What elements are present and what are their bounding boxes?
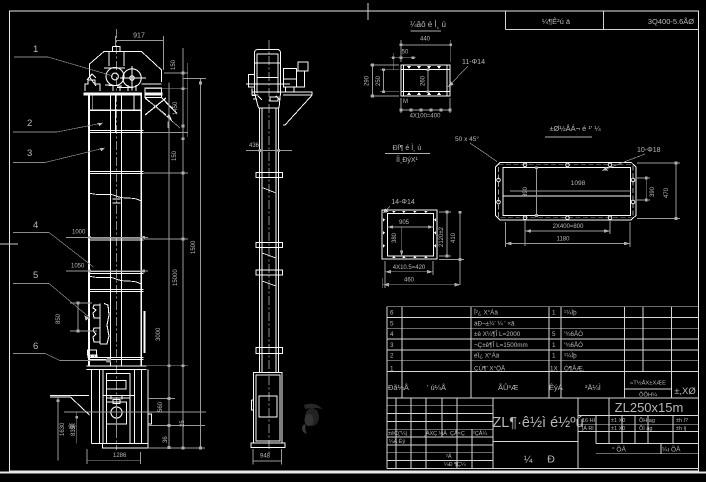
svg-text:560: 560 <box>158 401 164 412</box>
svg-text:²Ä: ²Ä <box>446 453 452 460</box>
svg-text:ZL¶·ê½ì é½ºú: ZL¶·ê½ì é½ºú <box>492 415 583 431</box>
svg-text:1180: 1180 <box>557 237 571 243</box>
svg-text:±h l?: ±h l? <box>676 418 688 424</box>
svg-text:Ðã¼Å: Ðã¼Å <box>388 383 409 392</box>
svg-text:5: 5 <box>552 331 556 338</box>
svg-text:¼Ð ¶Ç¼: ¼Ð ¶Ç¼ <box>444 462 466 468</box>
svg-text:948: 948 <box>260 454 271 460</box>
svg-text:M: M <box>403 99 408 105</box>
svg-text:¼ı ÕÅ: ¼ı ÕÅ <box>662 445 681 454</box>
svg-text:6: 6 <box>390 310 394 317</box>
svg-text:50 x 45°: 50 x 45° <box>455 135 479 143</box>
svg-text:917: 917 <box>133 33 145 40</box>
svg-text:390: 390 <box>523 186 529 197</box>
svg-text:470: 470 <box>664 187 670 198</box>
svg-text:¼¶Ê²ú ä: ¼¶Ê²ú ä <box>542 17 571 26</box>
svg-text:1630: 1630 <box>60 422 66 436</box>
svg-text:±êÇ('¼): ±êÇ('¼) <box>388 431 408 437</box>
svg-text:²Ä¼Ì: ²Ä¼Ì <box>585 383 601 392</box>
svg-text:±1 X0: ±1 X0 <box>611 418 625 424</box>
svg-text:410: 410 <box>451 232 457 243</box>
svg-text:2: 2 <box>390 353 394 360</box>
svg-text:3: 3 <box>27 148 32 159</box>
svg-text:±ê X¼¶Î L=2000: ±ê X¼¶Î L=2000 <box>474 329 521 338</box>
svg-text:835: 835 <box>71 425 77 436</box>
svg-text:16 Hl: 16 Hl <box>582 418 595 424</box>
svg-text:¼: ¼ <box>524 454 533 466</box>
svg-text:5: 5 <box>390 320 394 327</box>
svg-text:4X100=400: 4X100=400 <box>410 114 442 120</box>
svg-text:ÕH ag: ÕH ag <box>639 417 655 424</box>
svg-text:1286: 1286 <box>113 453 127 459</box>
svg-text:1: 1 <box>552 353 556 360</box>
svg-text:1X: 1X <box>550 366 559 373</box>
svg-text:²ÇÅ¼: ²ÇÅ¼ <box>473 430 487 437</box>
svg-text:4: 4 <box>33 220 38 231</box>
svg-text:25: 25 <box>180 420 186 427</box>
svg-text:4: 4 <box>390 331 394 338</box>
svg-text:' ú¼Å: ' ú¼Å <box>427 383 446 392</box>
svg-text:1: 1 <box>390 366 394 373</box>
svg-text:ÇÅ×Ç: ÇÅ×Ç <box>450 430 465 437</box>
svg-text:850: 850 <box>56 313 62 324</box>
svg-text:ÊýÁ: ÊýÁ <box>549 383 563 392</box>
svg-text:4X10.5=420: 4X10.5=420 <box>393 265 426 271</box>
svg-text:290: 290 <box>365 75 371 86</box>
svg-text:1050: 1050 <box>71 264 85 270</box>
svg-text:150: 150 <box>172 150 178 161</box>
svg-text:2120±2: 2120±2 <box>439 226 445 247</box>
svg-text:'¾6ÅÓ: '¾6ÅÓ <box>564 340 583 349</box>
svg-text:1: 1 <box>552 342 556 349</box>
svg-text:36: 36 <box>163 436 169 443</box>
svg-text:¹¼Ìþ: ¹¼Ìþ <box>564 308 577 317</box>
svg-text:'¾6ÅÓ: '¾6ÅÓ <box>564 329 583 338</box>
svg-text:Î²¿ X°Áä: Î²¿ X°Áä <box>473 308 498 317</box>
svg-text:436: 436 <box>249 143 260 149</box>
svg-text:«T½ÅX±XÆE: «T½ÅX±XÆE <box>630 380 666 387</box>
svg-text:áÐ¬±¼' ¼ ' ×ã: áÐ¬±¼' ¼ ' ×ã <box>474 320 515 327</box>
svg-text:¬Ç±ê¶Î L=1500mm: ¬Ç±ê¶Î L=1500mm <box>474 340 528 349</box>
svg-text:260: 260 <box>421 75 427 86</box>
svg-text:ÍÌ¸ÐýX¹: ÍÌ¸ÐýX¹ <box>396 155 418 164</box>
svg-text:1098: 1098 <box>571 180 586 187</box>
svg-text:3000: 3000 <box>156 327 162 341</box>
svg-text:440: 440 <box>420 37 431 43</box>
svg-text:1: 1 <box>33 44 38 55</box>
svg-text:¼âô é Ì¸ ú: ¼âô é Ì¸ ú <box>410 20 446 29</box>
svg-text:1000: 1000 <box>72 230 86 236</box>
svg-text:905: 905 <box>399 220 410 226</box>
svg-text:jÁ Rl: jÁ Rl <box>581 425 594 432</box>
svg-text:1500: 1500 <box>191 240 197 254</box>
svg-text:Ó¶ÅÆ.: Ó¶ÅÆ. <box>564 364 585 373</box>
svg-text:¹¼Ìþ: ¹¼Ìþ <box>564 351 577 360</box>
svg-text:±Ø½ÅÁ¬ é ¹' ¼: ±Ø½ÅÁ¬ é ¹' ¼ <box>549 124 601 133</box>
svg-text:11-Φ14: 11-Φ14 <box>462 59 485 66</box>
svg-text:50: 50 <box>402 50 409 56</box>
svg-text:390: 390 <box>650 186 656 197</box>
svg-text:ÕÌ ag: ÕÌ ag <box>639 425 652 432</box>
svg-text:ÃÛ³Æ: ÃÛ³Æ <box>498 383 519 392</box>
svg-text:1450: 1450 <box>173 101 179 115</box>
svg-text:460: 460 <box>404 278 415 284</box>
svg-text:3: 3 <box>390 342 394 349</box>
svg-text:ÕÕH¼: ÕÕH¼ <box>639 392 657 399</box>
svg-text:380: 380 <box>392 232 398 243</box>
svg-text:Ð: Ð <box>547 454 555 466</box>
svg-text:±1 X0: ±1 X0 <box>611 426 625 432</box>
svg-text:ÐÏ¶ é Ì¸ ú: ÐÏ¶ é Ì¸ ú <box>393 143 422 152</box>
svg-text:¼Ä Êý: ¼Ä Êý <box>389 437 405 445</box>
svg-text:150: 150 <box>171 59 177 70</box>
svg-text:2X400=800: 2X400=800 <box>553 224 585 230</box>
svg-text:±h lj: ±h lj <box>676 426 686 432</box>
svg-text:15000: 15000 <box>173 269 179 286</box>
svg-text:±,XØ: ±,XØ <box>674 386 696 397</box>
svg-text:ÇÚ¶' X°ÖÃ: ÇÚ¶' X°ÖÃ <box>474 364 506 373</box>
svg-text:2: 2 <box>27 118 32 129</box>
svg-text:250: 250 <box>376 75 382 86</box>
svg-text:6: 6 <box>33 341 38 352</box>
svg-text:10-Φ18: 10-Φ18 <box>637 147 661 154</box>
svg-text:ZL250x15m: ZL250x15m <box>615 400 684 415</box>
svg-text:14-Φ14: 14-Φ14 <box>391 199 415 206</box>
svg-text:¸ÄXÇ ¼Ä: ¸ÄXÇ ¼Ä <box>424 430 447 437</box>
svg-text:3Q400-5.6ÃØ: 3Q400-5.6ÃØ <box>648 17 694 26</box>
svg-text:éÏ¿ X°Áä: éÏ¿ X°Áä <box>474 351 500 360</box>
svg-text:° ÕÅ: ° ÕÅ <box>612 445 626 454</box>
svg-text:5: 5 <box>33 270 38 281</box>
svg-text:1: 1 <box>552 310 556 317</box>
